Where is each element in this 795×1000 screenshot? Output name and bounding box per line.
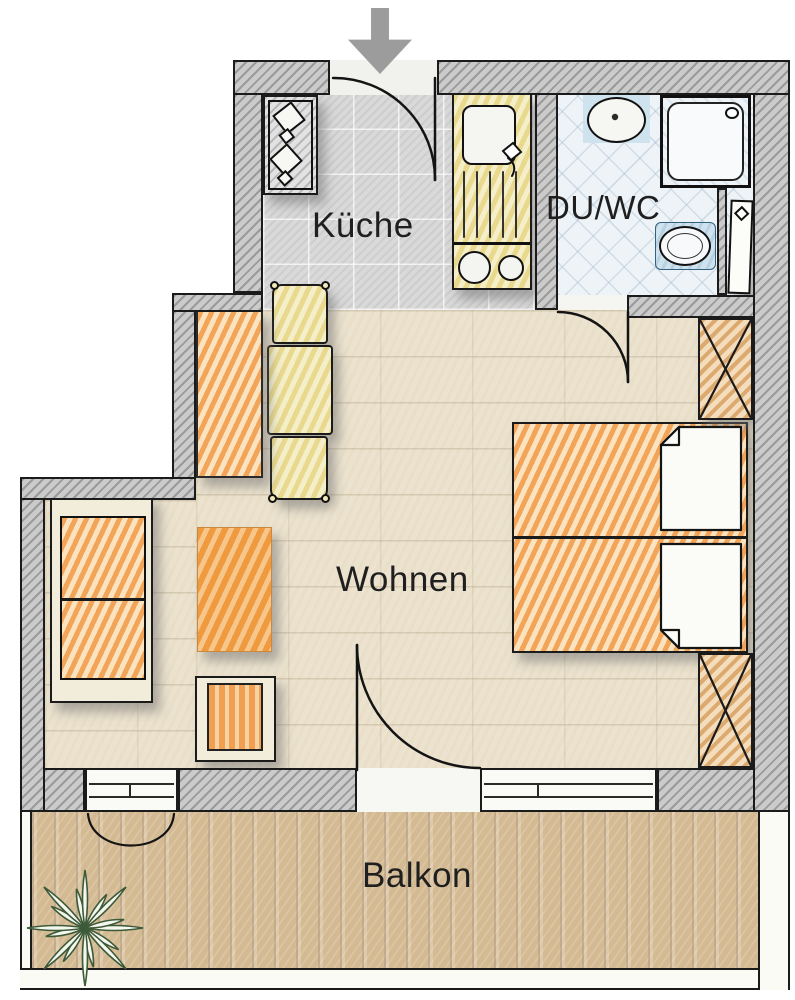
kitchen-unit	[452, 92, 532, 290]
wall-step-upper	[172, 293, 263, 312]
room-label-kueche: Küche	[312, 206, 414, 246]
wall-step-lower	[20, 477, 196, 500]
balcony-door-opening	[357, 768, 480, 812]
double-bed	[512, 422, 748, 653]
wall-left-upper	[172, 312, 196, 480]
wall-bath-bottom	[627, 295, 753, 318]
dining-chair	[270, 436, 328, 500]
balcony-railing-bottom	[20, 968, 790, 990]
window-mullion	[484, 796, 653, 798]
sofa	[50, 495, 153, 703]
window-left	[85, 768, 178, 812]
radiator	[727, 200, 753, 295]
chair-knob	[270, 281, 279, 290]
room-label-balkon: Balkon	[362, 856, 472, 896]
wardrobe	[698, 318, 753, 420]
kitchen-hotplate	[498, 255, 524, 281]
wall-bath-niche	[717, 188, 727, 295]
room-label-wohnen: Wohnen	[336, 560, 469, 600]
wall-top-left	[233, 60, 330, 95]
chair-knob	[268, 494, 277, 503]
wall-top-right	[437, 60, 790, 95]
window-right	[480, 768, 657, 812]
wall-left-lower	[20, 500, 45, 812]
window-mullion-tick	[129, 783, 131, 798]
wardrobe	[698, 653, 753, 768]
shower-drain-icon	[725, 107, 739, 119]
coffee-table	[197, 527, 272, 652]
wall-right	[753, 95, 790, 812]
washbasin	[587, 97, 646, 143]
radiator-valve-icon	[734, 206, 750, 222]
shower	[660, 95, 751, 188]
armchair	[195, 676, 276, 762]
armchair-seat	[207, 683, 263, 751]
toilet-seat	[667, 233, 703, 259]
dining-chair	[272, 284, 328, 344]
chair-knob	[321, 494, 330, 503]
bed-divider	[514, 536, 746, 539]
window-mullion-tick	[537, 783, 539, 798]
balcony-railing-left	[20, 812, 32, 990]
kitchen-sink	[462, 105, 516, 165]
sideboard	[196, 310, 263, 478]
sofa-cushion-divider	[62, 598, 144, 601]
wall-bottom-a	[45, 768, 85, 812]
window-mullion	[89, 796, 174, 798]
wall-kitchen-left	[233, 95, 263, 293]
sofa-seat	[60, 516, 146, 680]
window-mullion	[484, 783, 653, 785]
wall-bottom-b	[178, 768, 357, 812]
dining-table	[267, 345, 333, 435]
kitchen-hotplate	[458, 251, 491, 284]
stove	[263, 95, 318, 195]
chair-knob	[321, 281, 330, 290]
kitchen-unit-divider	[454, 242, 530, 245]
balcony-railing-right	[758, 812, 790, 990]
floor-plan-canvas: Küche DU/WC Wohnen Balkon	[0, 0, 795, 1000]
window-mullion	[89, 783, 174, 785]
wall-bottom-c	[657, 768, 753, 812]
room-label-duwc: DU/WC	[546, 189, 660, 227]
toilet	[659, 226, 711, 266]
